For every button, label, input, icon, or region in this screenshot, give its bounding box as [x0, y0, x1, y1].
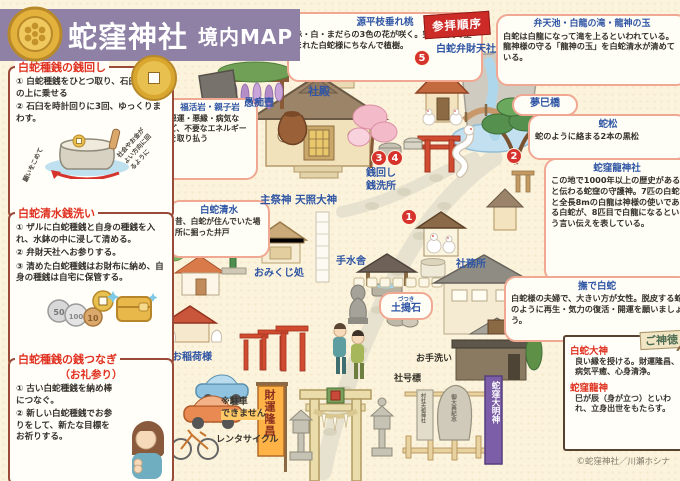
stone-lantern-right	[371, 398, 393, 456]
stone-lantern-left	[290, 410, 312, 460]
label-oinarisama: お稲荷様	[172, 348, 212, 363]
info-box-subtitle: （お礼参り）	[16, 367, 166, 382]
label-otearai: お手洗い	[416, 351, 452, 364]
title-banner: 蛇窪神社 境内MAP	[0, 9, 300, 61]
label-chozuya: 手水舎	[336, 252, 366, 267]
tane-zeni-coin-icon	[131, 55, 177, 101]
annotation-ryujinja: 蛇窪龍神社 この地で1000年以上の歴史があると伝わる蛇窪の守護神。7匹の白蛇と…	[544, 158, 680, 282]
page-subtitle: 境内MAP	[198, 21, 293, 50]
coin-value: 100	[69, 313, 84, 321]
step: ② 石臼を時計回りに3回、ゆっくりまわす。	[16, 102, 166, 125]
order-badge-2: 2	[506, 148, 522, 164]
grumble-pot	[279, 111, 307, 145]
order-badge-1: 1	[401, 209, 417, 225]
label-hakuja-bentensha: 白蛇弁財天社	[436, 40, 496, 55]
gohei-icon	[673, 333, 680, 351]
annotation-yumemibashi: 夢巳橋	[512, 94, 578, 116]
label-zaiun-ryusho: 財運隆昌	[261, 389, 277, 437]
coins-wallet-illustration: 50 100 10	[21, 287, 161, 329]
deity-text: 巳が辰（身が立つ）といわれ、立身出世をもたらす。	[570, 394, 680, 415]
annotation-text: 白蛇様の夫婦で、大きい方が女性。脱皮する蛇のように再生・気力の復活・開運を願いま…	[511, 293, 680, 325]
ema-row	[354, 278, 442, 287]
annotation-title: 蛇松	[535, 119, 680, 130]
bicycle	[171, 430, 218, 459]
praying-woman-illustration	[124, 417, 170, 481]
label-omikuji: おみくじ処	[254, 264, 304, 279]
deity-name: 蛇窪龍神	[570, 380, 680, 394]
label-gotaiten-kinen: 御大典紀念	[449, 394, 457, 422]
annotation-title: 弁天池・白龍の滝・龍神の玉	[503, 19, 680, 30]
annotation-title: 福活岩・親子岩	[169, 103, 251, 113]
step: ② 新しい白蛇種銭でお参りをして、新たな目標をお祈りする。	[16, 409, 116, 444]
order-badge-4: 4	[387, 150, 403, 166]
annotation-title: 夢巳橋	[518, 98, 572, 110]
coin-value: 10	[87, 314, 99, 323]
annotation-shirohebishimizu: 白蛇清水 昔、白蛇が住んでいた場所に掘った井戸	[168, 200, 270, 258]
deity-text: 良い縁を授ける。財運隆昌、病気平癒、心身清浄。	[570, 357, 680, 378]
label-dotsukiishi: 土搗石	[384, 303, 428, 315]
step: ① 古い白蛇種銭を納め棒につなぐ。	[16, 384, 116, 407]
annotation-title: 蛇窪龍神社	[551, 163, 680, 174]
annotation-text: この地で1000年以上の歴史があると伝わる蛇窪の守護神。7匹の白蛇と全長8mの白…	[551, 175, 680, 228]
info-box-zeniarai: 白蛇清水銭洗い ① ザルに白蛇種銭と自身の種銭を入れ、水鉢の中に浸して清める。 …	[8, 212, 174, 367]
step: ③ 清めた白蛇種銭はお財布に納め、自身の種銭は自宅に保管する。	[16, 262, 166, 285]
annotation-text: 悪運・悪縁・病気など、不要なエネルギーを取り払う	[169, 114, 251, 144]
step: ① ザルに白蛇種銭と自身の種銭を入れ、水鉢の中に浸して清める。	[16, 223, 166, 246]
copyright-text: ©蛇窪神社／川瀬ホシナ	[576, 455, 670, 467]
label-dotsukiishi-furigana: づつき	[384, 295, 428, 303]
label-dotsukiishi-bubble: づつき 土搗石	[379, 292, 433, 320]
label-hebikubo-daimyojin: 蛇窪大明神	[489, 381, 501, 424]
annotation-text: 昔、白蛇が住んでいた場所に掘った井戸	[175, 217, 263, 237]
label-no-parking: ※駐車 できません	[221, 397, 266, 420]
label-shaden: 社殿	[308, 83, 330, 99]
shrine-crest-icon	[6, 5, 64, 63]
order-badge-3: 3	[371, 150, 387, 166]
annotation-fukkatsuiwa: 福活岩・親子岩 悪運・悪縁・病気など、不要なエネルギーを取り払う	[162, 98, 258, 180]
ryujin-shrine	[487, 171, 534, 230]
step: ② 弁財天社へお参りする。	[16, 248, 166, 260]
stone-statue	[348, 285, 368, 324]
annotation-title: 白蛇清水	[175, 205, 263, 216]
worship-order-flag: 参拝順序	[423, 11, 491, 40]
coin-value: 50	[53, 308, 65, 317]
shrine-grounds-map: 蛇窪神社 境内MAP 白蛇種銭の銭回し ① 白蛇種銭をひとつ取り、石臼の金杯の上…	[0, 0, 680, 481]
annotation-benten: 弁天池・白龍の滝・龍神の玉 白蛇は白龍になって滝を上るといわれている。龍神様の守…	[496, 14, 680, 86]
label-guchitsubo: 愚痴壺	[244, 94, 274, 109]
label-shagohyo: 社号標	[394, 371, 421, 384]
shintoku-box: ご神徳 白蛇大神 良い縁を授ける。財運隆昌、病気平癒、心身清浄。 蛇窪龍神 巳が…	[563, 335, 680, 451]
label-shamusho: 社務所	[456, 255, 486, 270]
inari-torii-row	[240, 326, 308, 371]
info-box-zenitsunagi: 白蛇種銭の銭つなぎ （お礼参り） ① 古い白蛇種銭を納め棒につなぐ。 ② 新しい…	[8, 358, 174, 481]
label-zenimawashi: 銭回し 銭洗所	[366, 168, 396, 193]
annotation-text: 蛇のように絡まる2本の黒松	[535, 131, 680, 142]
annotation-text: 白蛇は白龍になって滝を上るといわれている。龍神様の守る「龍神の玉」を白蛇清水が清…	[503, 31, 680, 63]
order-badge-5: 5	[414, 50, 430, 66]
info-box-title: 白蛇種銭の銭つなぎ	[15, 351, 120, 367]
nobori-banner	[316, 212, 329, 282]
annotation-title: 撫で白蛇	[511, 281, 680, 292]
annotation-hebimatsu: 蛇松 蛇のように絡まる2本の黒松	[528, 114, 680, 160]
label-shusaijin: 主祭神 天照大神	[260, 192, 337, 207]
info-box-title: 白蛇清水銭洗い	[15, 205, 98, 221]
page-title: 蛇窪神社	[68, 14, 188, 56]
label-sonsha-tenso: 村社天祖神社	[420, 393, 427, 423]
